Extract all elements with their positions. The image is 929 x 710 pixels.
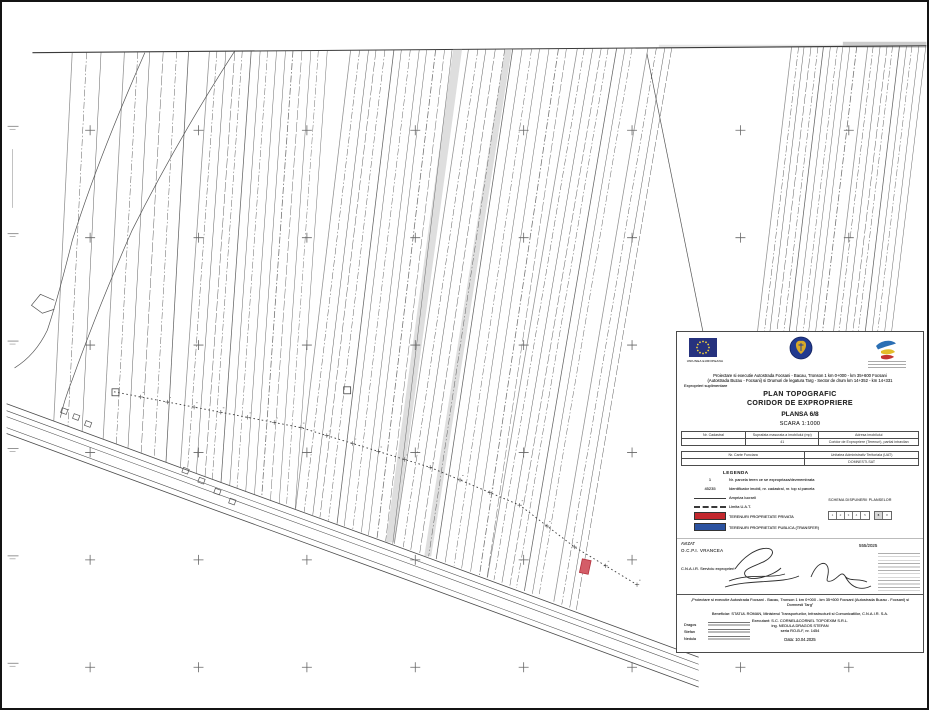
legend-symbol-public-land <box>691 523 729 532</box>
schema-sheet-cell: 6 <box>875 512 883 519</box>
grid-cross <box>627 340 637 350</box>
grid-cross <box>85 233 95 243</box>
sheet-number: PLANSA 6/8 <box>677 411 923 418</box>
alignment-arc <box>647 54 705 340</box>
parcel-line <box>237 51 268 488</box>
micro-label-mark <box>608 561 610 562</box>
grid-cross <box>302 340 312 350</box>
micro-label-mark <box>169 397 171 398</box>
sheet-layout-schema: SCHEMA DISPUNERII PLANSELOR 1234568 <box>799 498 921 520</box>
grid-cross <box>735 233 745 243</box>
schema-sheet-cell: 4 <box>853 512 861 519</box>
grid-cross <box>627 447 637 457</box>
road-line <box>7 411 699 665</box>
table2-value-uat: DOMNESTI-SAT <box>805 459 919 466</box>
legend-label: Limita U.A.T. <box>729 504 751 509</box>
signature-scribble <box>708 629 750 634</box>
parcel-line <box>320 50 376 517</box>
table1-value-area: 41 <box>745 439 818 446</box>
table1-header-address: Adresa imobilului <box>819 432 919 439</box>
grid-cross <box>519 125 529 135</box>
schema-sheet-cell: 1 <box>829 512 837 519</box>
grid-cross <box>735 662 745 672</box>
parcel-line <box>562 48 657 605</box>
title-block-logos: UNIUNEA EUROPEANA <box>677 332 923 372</box>
table1-value-address: Coridor de Expropriere (Terenuri), parti… <box>819 439 919 446</box>
parcel-line <box>337 50 394 524</box>
parcel-line <box>262 51 293 497</box>
schema-sheet-cell: 5 <box>861 512 869 519</box>
plan-titles: PLAN TOPOGRAFIC CORIDOR DE EXPROPRIERE P… <box>677 391 923 427</box>
parcel-line <box>103 52 124 439</box>
schema-title: SCHEMA DISPUNERII PLANSELOR <box>799 498 921 502</box>
micro-label-mark <box>380 446 382 447</box>
romania-coat-of-arms-icon <box>789 336 813 360</box>
legend-label: Ampriza lucrarii <box>729 495 756 500</box>
legend-item: 45235 Identificator imobil, nr. cadastra… <box>691 484 923 493</box>
grid-cross <box>302 662 312 672</box>
corridor-tick <box>458 478 462 482</box>
name-label: Dragos <box>684 623 708 627</box>
table2-header-uat: Unitatea Administrativ Teritoriala (UAT) <box>805 452 919 459</box>
parcel-line <box>154 52 176 458</box>
parcel-line <box>279 51 311 504</box>
schema-sheet-strip: 1234568 <box>799 511 921 520</box>
legend-item: 1 Nr. parcela teren ce se expropriaza/de… <box>691 475 923 484</box>
parcel-line <box>128 52 150 448</box>
micro-label-mark <box>639 580 641 581</box>
grid-cross <box>302 233 312 243</box>
micro-label-mark <box>196 402 198 403</box>
parcel-line <box>480 49 559 575</box>
grid-cross <box>519 662 529 672</box>
corridor-tick <box>517 503 521 507</box>
micro-label-mark <box>406 454 408 455</box>
grid-cross <box>519 447 529 457</box>
corridor-tick <box>428 465 432 469</box>
grid-cross <box>194 233 204 243</box>
schema-sheet-cell: 2 <box>837 512 845 519</box>
micro-label-mark <box>329 431 331 432</box>
map-frame-top <box>32 46 926 53</box>
micro-label-mark <box>576 542 578 543</box>
micro-label-mark <box>549 521 551 522</box>
grid-cross <box>302 125 312 135</box>
grid-cross <box>627 233 637 243</box>
land-book-table: Nr. Carte Funciara Unitatea Administrati… <box>681 451 919 466</box>
grid-cross <box>410 447 420 457</box>
ocpi-signature <box>723 539 801 591</box>
avizat-label: AVIZAT <box>681 541 695 546</box>
grid-cross <box>85 125 95 135</box>
corridor-tick <box>192 405 196 409</box>
grid-cross <box>194 340 204 350</box>
parcel-line <box>295 50 327 509</box>
signature-scribble <box>708 622 750 627</box>
legend-symbol-footprint-line <box>691 495 729 500</box>
grid-cross <box>194 662 204 672</box>
table1-header-cadastral: Nr. Cadastral <box>682 432 746 439</box>
approval-section: AVIZAT O.C.P.I. VRANCEA C.N.A.I.R. Servi… <box>677 538 923 594</box>
scale-label: SCARA 1:1000 <box>677 421 923 427</box>
certification-stamp-text <box>878 553 920 593</box>
micro-label-mark <box>432 462 434 463</box>
name-label: Stefan <box>684 630 708 634</box>
expropriation-corridor-line <box>114 392 637 585</box>
parcel-line <box>246 51 277 491</box>
parcel-line <box>116 52 138 444</box>
signature-scribble <box>708 636 750 641</box>
schema-sheet-cell: 8 <box>883 512 891 519</box>
corridor-tick <box>545 524 549 528</box>
parcel-line <box>296 50 351 508</box>
grid-cross <box>410 125 420 135</box>
grid-cross <box>519 340 529 350</box>
micro-label-mark <box>276 418 278 419</box>
parcel-line <box>554 48 648 602</box>
parcel-line <box>54 52 72 421</box>
legend-label: TERENURI PROPRIETATE PRIVATA <box>729 514 794 519</box>
parcel-line <box>286 50 318 505</box>
parcel-line <box>570 48 665 608</box>
micro-label-mark <box>250 412 252 413</box>
parcel-line <box>471 49 549 572</box>
expropriated-parcel-highlight <box>579 559 591 574</box>
name-label: Nedula <box>684 637 708 641</box>
micro-label-mark <box>303 423 305 424</box>
name-row: Nedula <box>684 635 750 642</box>
title-block: UNIUNEA EUROPEANA Proiectare si executie… <box>676 331 924 653</box>
grid-cross <box>85 447 95 457</box>
name-row: Dragos <box>684 621 750 628</box>
alignment-arc <box>60 52 234 418</box>
parcel-line <box>516 48 608 588</box>
grid-cross <box>844 125 854 135</box>
legend: LEGENDA 1 Nr. parcela teren ce se exprop… <box>677 470 923 538</box>
parcel-line <box>462 49 540 569</box>
footer-project-quote-line2: Domnesti Targ” <box>681 603 919 608</box>
table2-header-landbook: Nr. Carte Funciara <box>682 452 805 459</box>
corridor-tick <box>376 449 380 453</box>
corridor-tick <box>219 410 223 414</box>
legend-item: TERENURI PROPRIETATE PUBLICA (TRANSFER) <box>691 522 923 533</box>
corridor-tick <box>245 415 249 419</box>
eu-flag-icon <box>689 338 717 357</box>
table1-value-cadastral <box>682 439 746 446</box>
parcel-line <box>254 51 285 495</box>
parcel-line <box>230 51 260 485</box>
grid-cross <box>302 555 312 565</box>
footer-section: „Proiectare si executie Autostrada Focsa… <box>677 594 923 651</box>
shaded-parcel-strip <box>424 49 512 556</box>
parcel-line <box>68 52 87 426</box>
micro-label-mark <box>223 407 225 408</box>
parcel-line <box>212 51 242 479</box>
project-title-line3: Exproprieri suplimentare <box>684 383 923 388</box>
beneficiary-line: Beneficiar: STATUL ROMAN, Ministerul Tra… <box>677 611 923 616</box>
building-outline <box>198 477 205 484</box>
grid-cross <box>194 555 204 565</box>
micro-label-mark <box>355 439 357 440</box>
building-outline <box>84 421 91 428</box>
legend-symbol-uat-limit-line <box>691 504 729 509</box>
parcel-line <box>180 51 209 467</box>
micro-label-mark <box>462 475 464 476</box>
alignment-arc <box>15 53 145 368</box>
legend-symbol-parcel-number: 1 <box>691 477 729 482</box>
legend-symbol-private-land <box>691 512 729 521</box>
parcel-line <box>313 50 369 515</box>
corridor-tick <box>325 433 329 437</box>
building-outline <box>73 414 80 421</box>
grid-cross <box>519 555 529 565</box>
grid-cross <box>85 662 95 672</box>
grid-cross <box>194 125 204 135</box>
corridor-tick <box>299 425 303 429</box>
grid-cross <box>302 447 312 457</box>
plan-subtitle: CORIDOR DE EXPROPRIERE <box>677 400 923 407</box>
cnair-logo-caption <box>868 361 906 368</box>
corridor-tick <box>604 564 608 568</box>
grid-cross <box>410 662 420 672</box>
table1-header-area: Suprafata masurata a imobilului (mp) <box>745 432 818 439</box>
ocpi-label: O.C.P.I. VRANCEA <box>681 548 723 553</box>
boundary-notch <box>31 294 54 313</box>
corridor-tick <box>635 583 639 587</box>
parcel-line <box>141 52 163 453</box>
scanned-topographic-plan: UNIUNEA EUROPEANA Proiectare si executie… <box>0 0 929 710</box>
legend-symbol-parcel-id: 45235 <box>691 486 729 491</box>
grid-cross <box>410 233 420 243</box>
road-line <box>7 428 699 682</box>
signature-names: Dragos Stefan Nedula <box>684 621 750 642</box>
parcel-line <box>304 50 359 512</box>
schema-sheet-cell: 3 <box>845 512 853 519</box>
table2-value-landbook <box>682 459 805 466</box>
parcel-line <box>361 50 419 533</box>
parcel-line <box>328 50 384 521</box>
grid-cross <box>735 125 745 135</box>
eu-flag-caption: UNIUNEA EUROPEANA <box>683 359 727 363</box>
plan-type: PLAN TOPOGRAFIC <box>677 391 923 398</box>
legend-label: TERENURI PROPRIETATE PUBLICA (TRANSFER) <box>729 525 819 530</box>
cnair-signature <box>805 557 873 593</box>
building-outline <box>229 498 236 505</box>
parcel-line <box>196 51 226 473</box>
survey-point-marker <box>344 387 351 394</box>
grid-cross <box>410 555 420 565</box>
parcel-line <box>344 50 401 526</box>
parcel-line <box>394 49 468 544</box>
grid-cross <box>627 555 637 565</box>
road-line <box>7 434 699 688</box>
aviz-number: 555/2025 <box>859 543 877 548</box>
cnair-logo-icon <box>874 338 898 360</box>
corridor-tick <box>139 395 143 399</box>
parcel-line <box>82 52 101 431</box>
name-row: Stefan <box>684 628 750 635</box>
parcel-line <box>576 48 672 610</box>
micro-label-mark <box>492 488 494 489</box>
grid-cross <box>85 555 95 565</box>
cadastral-table: Nr. Cadastral Suprafata masurata a imobi… <box>681 431 919 446</box>
parcel-line <box>205 51 235 476</box>
grid-cross <box>627 125 637 135</box>
parcel-line <box>270 51 301 500</box>
grid-cross <box>844 662 854 672</box>
legend-label: Nr. parcela teren ce se expropriaza/dezm… <box>729 477 814 482</box>
micro-label-mark <box>143 392 145 393</box>
grid-cross <box>194 447 204 457</box>
micro-label-mark <box>522 500 524 501</box>
legend-label: Identificator imobil, nr. cadastral, nr.… <box>729 486 814 491</box>
